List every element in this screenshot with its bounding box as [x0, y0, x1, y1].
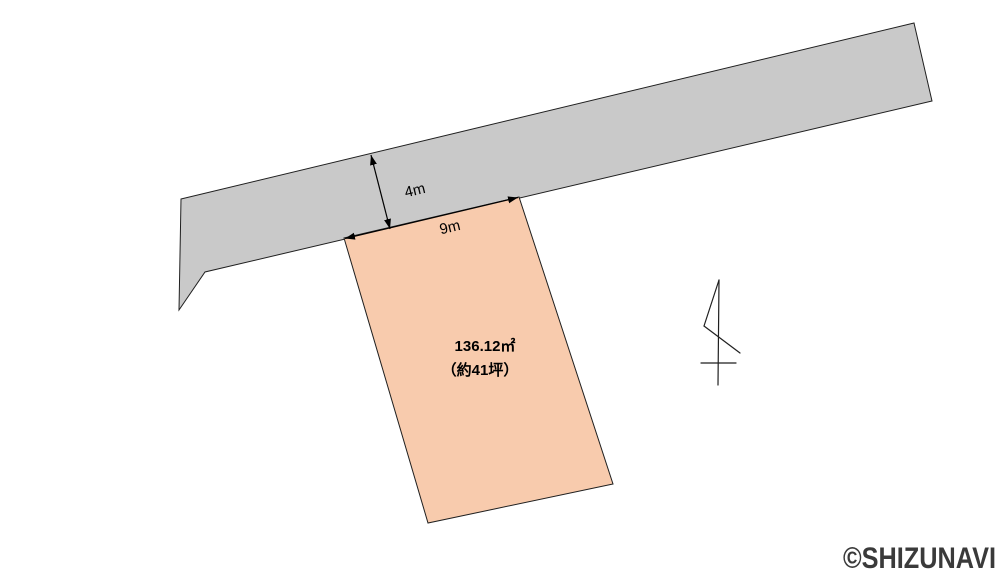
north-arrow-icon — [701, 280, 740, 385]
land-plot-shape — [344, 197, 613, 523]
plot-area-label: 136.12㎡ — [455, 337, 516, 355]
diagram-canvas: 4m 9m 136.12㎡ （約41坪） ©SHIZUNAVI — [0, 0, 1001, 577]
watermark: ©SHIZUNAVI — [843, 542, 996, 575]
land-plot-diagram: 4m 9m 136.12㎡ （約41坪） ©SHIZUNAVI — [0, 0, 1001, 577]
road-shape — [179, 23, 932, 310]
plot-area-tsubo-label: （約41坪） — [442, 361, 519, 379]
